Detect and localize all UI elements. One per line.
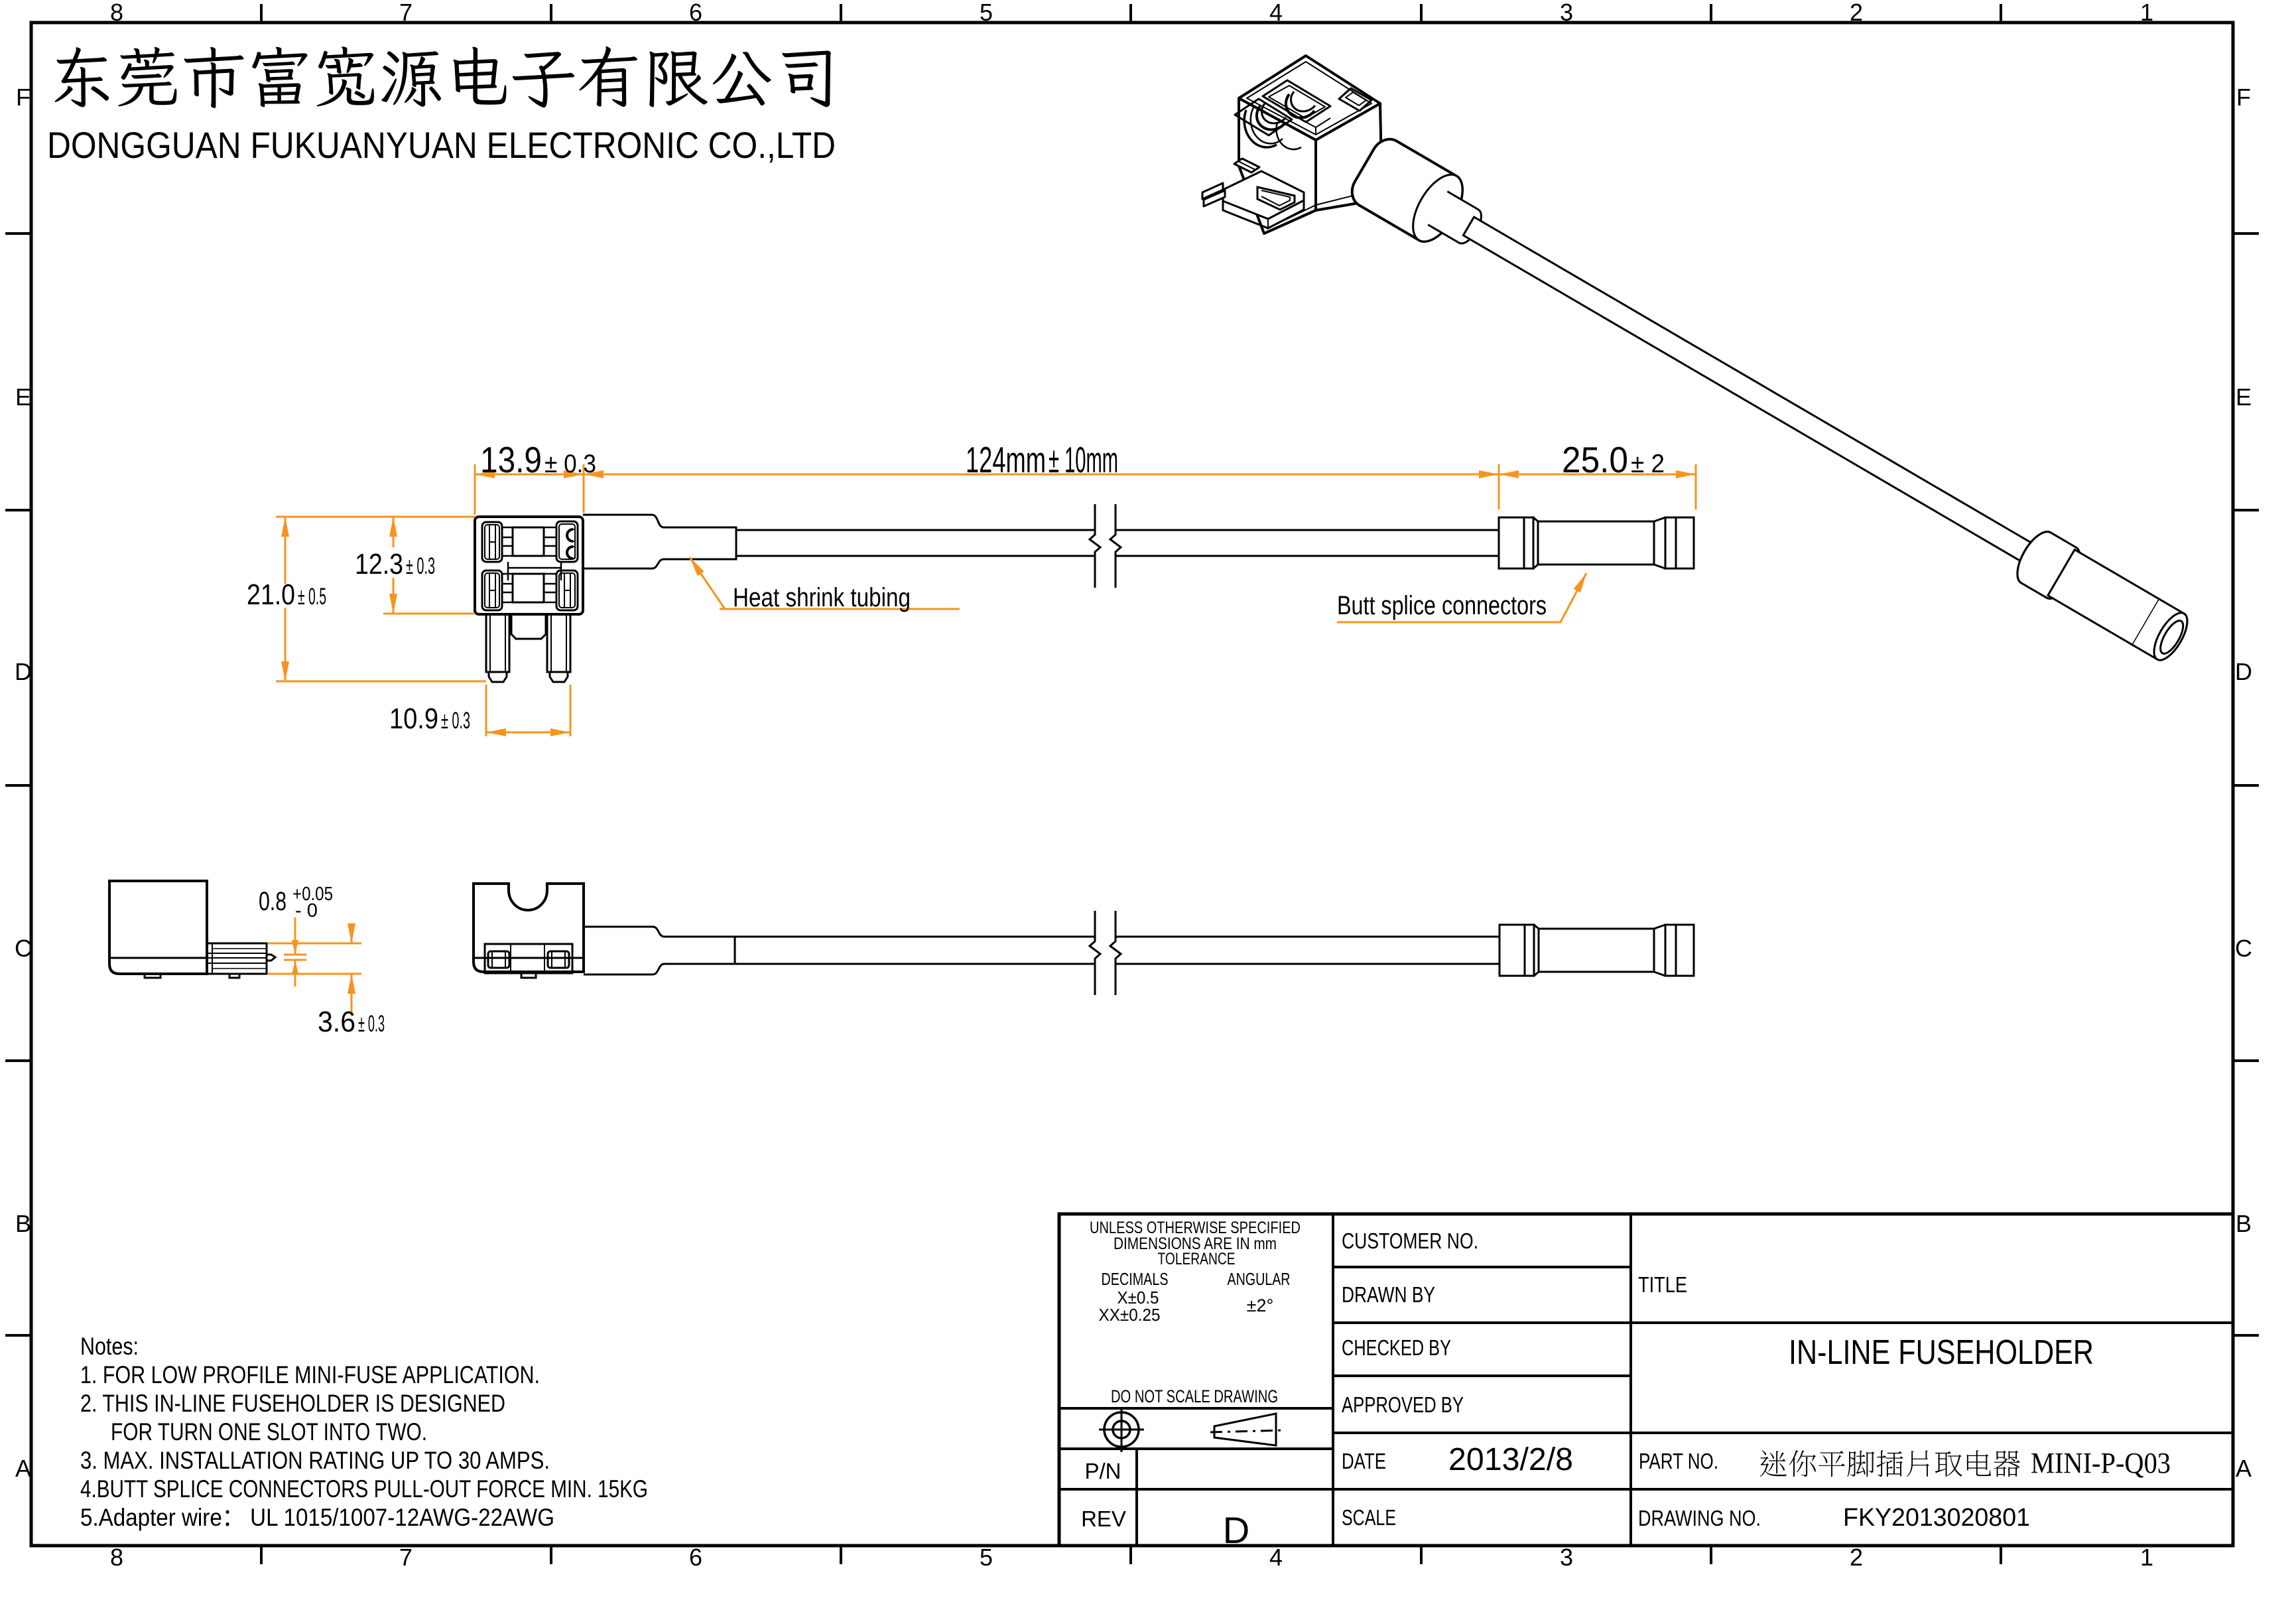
svg-text:A: A xyxy=(15,1455,31,1482)
svg-text:± 2: ± 2 xyxy=(1631,450,1665,478)
svg-text:XX±0.25: XX±0.25 xyxy=(1099,1305,1161,1325)
svg-text:2013/2/8: 2013/2/8 xyxy=(1448,1442,1573,1477)
svg-text:DECIMALS: DECIMALS xyxy=(1102,1269,1169,1289)
svg-text:5: 5 xyxy=(980,1544,993,1571)
svg-text:CHECKED BY: CHECKED BY xyxy=(1342,1335,1451,1360)
svg-text:FOR TURN ONE SLOT INTO TWO.: FOR TURN ONE SLOT INTO TWO. xyxy=(111,1418,427,1445)
svg-text:C: C xyxy=(15,935,32,962)
svg-text:6: 6 xyxy=(689,1544,702,1571)
svg-text:E: E xyxy=(2236,383,2252,411)
svg-text:MINI-P-Q03: MINI-P-Q03 xyxy=(2031,1447,2171,1479)
svg-text:5: 5 xyxy=(980,0,993,26)
svg-text:F: F xyxy=(16,84,31,111)
svg-text:6: 6 xyxy=(689,0,702,26)
svg-text:B: B xyxy=(15,1210,31,1237)
svg-text:124mm: 124mm xyxy=(966,439,1046,480)
svg-text:8: 8 xyxy=(110,0,123,26)
svg-text:13.9: 13.9 xyxy=(480,439,542,480)
svg-text:3.6: 3.6 xyxy=(318,1006,355,1038)
svg-text:D: D xyxy=(1223,1509,1249,1551)
svg-text:REV: REV xyxy=(1081,1506,1126,1531)
svg-text:± 10mm: ± 10mm xyxy=(1049,439,1118,480)
svg-text:Heat shrink tubing: Heat shrink tubing xyxy=(733,583,911,612)
svg-text:3: 3 xyxy=(1560,1544,1573,1571)
svg-text:0.8: 0.8 xyxy=(259,887,287,916)
svg-text:1: 1 xyxy=(2140,0,2153,26)
svg-text:8: 8 xyxy=(110,1544,123,1571)
svg-text:DONGGUAN FUKUANYUAN ELECTRONIC: DONGGUAN FUKUANYUAN ELECTRONIC CO.,LTD xyxy=(47,124,836,166)
svg-text:TITLE: TITLE xyxy=(1638,1272,1687,1297)
svg-text:TOLERANCE: TOLERANCE xyxy=(1158,1250,1236,1268)
svg-text:Butt splice connectors: Butt splice connectors xyxy=(1337,591,1547,620)
svg-text:D: D xyxy=(15,658,32,685)
svg-text:10.9: 10.9 xyxy=(389,703,438,735)
svg-text:Notes:: Notes: xyxy=(80,1333,139,1360)
svg-text:C: C xyxy=(2235,935,2252,962)
svg-text:IN-LINE FUSEHOLDER: IN-LINE FUSEHOLDER xyxy=(1789,1333,2094,1372)
svg-text:2: 2 xyxy=(1850,0,1863,26)
svg-text:5.Adapter wire： UL 1015/1007-: 5.Adapter wire： UL 1015/1007-12AWG-22AWG xyxy=(80,1504,554,1531)
svg-text:2. THIS IN-LINE FUSEHOLDER IS: 2. THIS IN-LINE FUSEHOLDER IS DESIGNED xyxy=(80,1390,505,1417)
svg-text:± 0.3: ± 0.3 xyxy=(406,553,435,579)
svg-text:4.BUTT SPLICE CONNECTORS PULL-: 4.BUTT SPLICE CONNECTORS PULL-OUT FORCE … xyxy=(80,1475,648,1503)
svg-text:F: F xyxy=(2236,84,2251,111)
svg-text:SCALE: SCALE xyxy=(1342,1505,1396,1530)
svg-text:CUSTOMER NO.: CUSTOMER NO. xyxy=(1342,1229,1478,1253)
svg-text:21.0: 21.0 xyxy=(247,578,295,611)
svg-text:APPROVED BY: APPROVED BY xyxy=(1342,1392,1464,1417)
svg-text:7: 7 xyxy=(399,1544,413,1571)
svg-text:± 0.3: ± 0.3 xyxy=(358,1011,385,1037)
svg-text:± 0.3: ± 0.3 xyxy=(441,708,470,734)
svg-text:3: 3 xyxy=(1560,0,1573,26)
svg-text:PART NO.: PART NO. xyxy=(1639,1449,1718,1473)
svg-text:D: D xyxy=(2235,658,2252,685)
svg-text:FKY2013020801: FKY2013020801 xyxy=(1843,1504,2030,1532)
svg-text:± 0.5: ± 0.5 xyxy=(298,584,326,610)
svg-text:25.0: 25.0 xyxy=(1562,439,1628,480)
svg-text:P/N: P/N xyxy=(1084,1459,1121,1483)
svg-text:E: E xyxy=(15,383,31,411)
svg-text:- 0: - 0 xyxy=(295,900,318,921)
svg-text:12.3: 12.3 xyxy=(355,548,403,580)
svg-text:DO NOT SCALE DRAWING: DO NOT SCALE DRAWING xyxy=(1111,1386,1278,1406)
svg-text:2: 2 xyxy=(1850,1544,1863,1571)
svg-text:A: A xyxy=(2236,1455,2252,1482)
svg-text:7: 7 xyxy=(399,0,413,26)
svg-text:1: 1 xyxy=(2140,1544,2153,1571)
svg-text:DRAWING NO.: DRAWING NO. xyxy=(1638,1506,1761,1530)
svg-text:4: 4 xyxy=(1269,0,1283,26)
svg-text:DRAWN BY: DRAWN BY xyxy=(1342,1282,1435,1307)
svg-text:4: 4 xyxy=(1269,1544,1283,1571)
svg-text:B: B xyxy=(2236,1210,2252,1237)
svg-text:ANGULAR: ANGULAR xyxy=(1228,1269,1291,1289)
svg-text:1. FOR LOW PROFILE MINI-FUSE A: 1. FOR LOW PROFILE MINI-FUSE APPLICATION… xyxy=(80,1361,540,1388)
svg-text:3. MAX. INSTALLATION RATING UP: 3. MAX. INSTALLATION RATING UP TO 30 AMP… xyxy=(80,1447,550,1474)
svg-text:DATE: DATE xyxy=(1342,1449,1386,1473)
svg-text:±2°: ±2° xyxy=(1247,1296,1274,1315)
